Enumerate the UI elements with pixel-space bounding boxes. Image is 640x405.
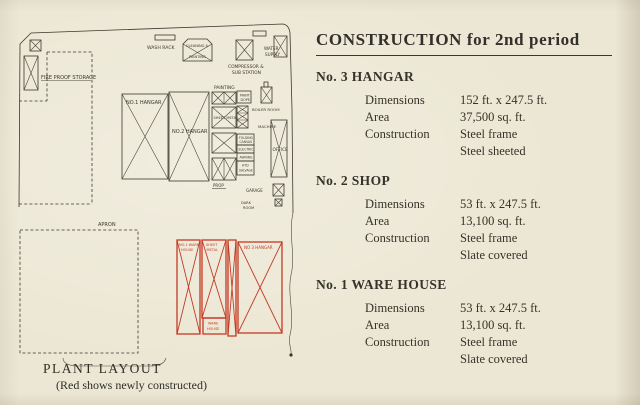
cleaning-painting-building: CLEANING & PAINTING [183, 39, 212, 61]
spec-value: 53 ft. x 247.5 ft. [460, 196, 622, 213]
red-sheet-metal-shop: SHEET METAL WARE HOUSE [202, 240, 226, 334]
apron-area: APRON [20, 222, 138, 353]
spec-row: Area 13,100 sq. ft. [365, 213, 622, 230]
water-supply-label-1: WATER [264, 46, 279, 51]
spec-label: Dimensions [365, 92, 460, 109]
cleaning-label-1: CLEANING & [186, 44, 209, 48]
plan-caption-note: (Red shows newly constructed) [56, 378, 207, 393]
plan-caption: PLANT LAYOUT (Red shows newly constructe… [43, 361, 207, 393]
cleaning-label-2: PAINTING [189, 55, 206, 59]
sheet-metal-label: SHEET METAL [214, 116, 239, 120]
spec-label: Area [365, 109, 460, 126]
spec-row: Steel sheeted [365, 143, 622, 160]
sheet-metal-shop: SHEET METAL [212, 107, 238, 128]
red-narrow-strip [228, 240, 236, 336]
spec-value: Steel frame [460, 230, 622, 247]
shop-strip-building [237, 106, 248, 128]
red-no1-warehouse-label-1: NO.1 WARE [179, 243, 199, 247]
office-label: OFFICE [273, 147, 289, 153]
dark-room: DARK ROOM [241, 199, 282, 210]
boiler-room: BOILER ROOM [252, 82, 280, 112]
spec-value: Steel frame [460, 126, 622, 143]
red-no3-hangar: NO 3 HANGAR [238, 242, 282, 333]
spec-row: Slate covered [365, 351, 622, 368]
spec-value: 13,100 sq. ft. [460, 213, 622, 230]
spec-label: Dimensions [365, 196, 460, 213]
shop-block-pair-1 [212, 92, 236, 104]
boundary-end-dot [289, 353, 292, 356]
section-heading: No. 3 HANGAR [316, 69, 622, 85]
no2-hangar-label: NO.2 HANGAR [172, 129, 208, 135]
stack-hyd-label-2: SALVAGE [239, 169, 253, 173]
compressor-label-2: SUB STATION [232, 70, 261, 76]
spec-row: Construction Steel frame [365, 230, 622, 247]
spec-row: Area 37,500 sq. ft. [365, 109, 622, 126]
spec-label: Construction [365, 230, 460, 247]
garage: GARAGE [246, 184, 284, 196]
garage-label: GARAGE [246, 188, 263, 193]
red-no1-warehouse-label-2: HOUSE [181, 248, 193, 252]
compressor-sub-station: COMPRESSOR & SUB STATION [228, 40, 264, 76]
spec-value: Slate covered [460, 247, 622, 264]
dark-room-label-2: ROOM [243, 206, 254, 210]
spec-value: 152 ft. x 247.5 ft. [460, 92, 622, 109]
red-warehouse-label-2: HOUSE [207, 327, 219, 331]
plan-caption-title: PLANT LAYOUT [43, 361, 207, 377]
section-heading: No. 2 SHOP [316, 173, 622, 189]
spec-value: 53 ft. x 247.5 ft. [460, 300, 622, 317]
plant-boundary-right-wavy [289, 213, 293, 354]
compressor-label-1: COMPRESSOR & [228, 64, 264, 70]
spec-label: Area [365, 213, 460, 230]
page-title: CONSTRUCTION for 2nd period [316, 30, 612, 56]
fire-proof-storage-area: FIRE PROOF STORAGE [19, 40, 96, 204]
spec-value: Slate covered [460, 351, 622, 368]
water-supply-label-2: SUPPLY [265, 52, 281, 57]
machine-label: MACHINE [258, 124, 277, 129]
construction-specs-panel: CONSTRUCTION for 2nd period No. 3 HANGAR… [316, 30, 622, 368]
dark-room-label-1: DARK [241, 201, 252, 205]
spec-row: Area 13,100 sq. ft. [365, 317, 622, 334]
stack-electric-label: ELECTRIC [239, 148, 254, 152]
spec-value: 37,500 sq. ft. [460, 109, 622, 126]
office-building: OFFICE [271, 120, 288, 177]
spec-label [365, 351, 460, 368]
spec-label: Dimensions [365, 300, 460, 317]
red-warehouse-label-1: WARE [208, 322, 218, 326]
section-heading: No. 1 WARE HOUSE [316, 277, 622, 293]
spec-row: Dimensions 152 ft. x 247.5 ft. [365, 92, 622, 109]
shop-block-x-1 [212, 133, 236, 153]
small-shed [253, 31, 266, 36]
plant-boundary-top [20, 24, 293, 213]
plant-boundary-left [19, 44, 20, 207]
spec-label: Construction [365, 334, 460, 351]
spec-label [365, 143, 460, 160]
no1-hangar-building: NO.1 HANGAR [122, 94, 168, 179]
red-no3-hangar-label: NO 3 HANGAR [244, 245, 273, 250]
red-warehouse-annex [203, 318, 226, 334]
shop-block-pair-2: PROP [212, 158, 236, 189]
spec-label: Area [365, 317, 460, 334]
apron-label: APRON [98, 222, 116, 228]
spec-row: Slate covered [365, 247, 622, 264]
red-no1-warehouse: NO.1 WARE HOUSE [177, 240, 200, 334]
dope-label-1: PAINT [240, 94, 251, 98]
spec-label [365, 247, 460, 264]
water-supply: WATER SUPPLY [264, 36, 287, 57]
boiler-room-label: BOILER ROOM [252, 107, 280, 112]
wash-rack: WASH RACK [147, 35, 176, 51]
spec-value: 13,100 sq. ft. [460, 317, 622, 334]
small-shop-stack: FOLDING CANVAS ELECTRIC AWNING HYD SALVA… [237, 134, 254, 175]
stack-hyd-label-1: HYD [242, 164, 249, 168]
red-sheet-metal-label-2: METAL [207, 248, 218, 252]
painting-label: PAINTING [214, 85, 235, 91]
fire-proof-storage-label: FIRE PROOF STORAGE [41, 75, 96, 81]
paint-dope-shop: PAINT DOPE [237, 91, 251, 103]
red-sheet-metal-label-1: SHEET [206, 243, 218, 247]
spec-row: Construction Steel frame [365, 334, 622, 351]
stack-awning-label: AWNING [240, 156, 254, 160]
dope-label-2: DOPE [241, 98, 250, 102]
no1-hangar-label: NO.1 HANGAR [126, 100, 162, 106]
no2-hangar-building: NO.2 HANGAR [169, 92, 209, 181]
wash-rack-label: WASH RACK [147, 45, 176, 51]
spec-value: Steel frame [460, 334, 622, 351]
spec-value: Steel sheeted [460, 143, 622, 160]
spec-row: Dimensions 53 ft. x 247.5 ft. [365, 300, 622, 317]
section-no1-warehouse: No. 1 WARE HOUSE Dimensions 53 ft. x 247… [316, 277, 622, 368]
scanned-report-page: FIRE PROOF STORAGE WASH RACK CLEANING & … [0, 0, 640, 405]
spec-label: Construction [365, 126, 460, 143]
spec-row: Construction Steel frame [365, 126, 622, 143]
plant-layout-diagram: FIRE PROOF STORAGE WASH RACK CLEANING & … [0, 0, 312, 405]
section-no2-shop: No. 2 SHOP Dimensions 53 ft. x 247.5 ft.… [316, 173, 622, 264]
spec-row: Dimensions 53 ft. x 247.5 ft. [365, 196, 622, 213]
section-no3-hangar: No. 3 HANGAR Dimensions 152 ft. x 247.5 … [316, 69, 622, 160]
stack-folding-label-2: CANVAS [240, 140, 253, 144]
prop-shop-label: PROP [213, 183, 224, 188]
